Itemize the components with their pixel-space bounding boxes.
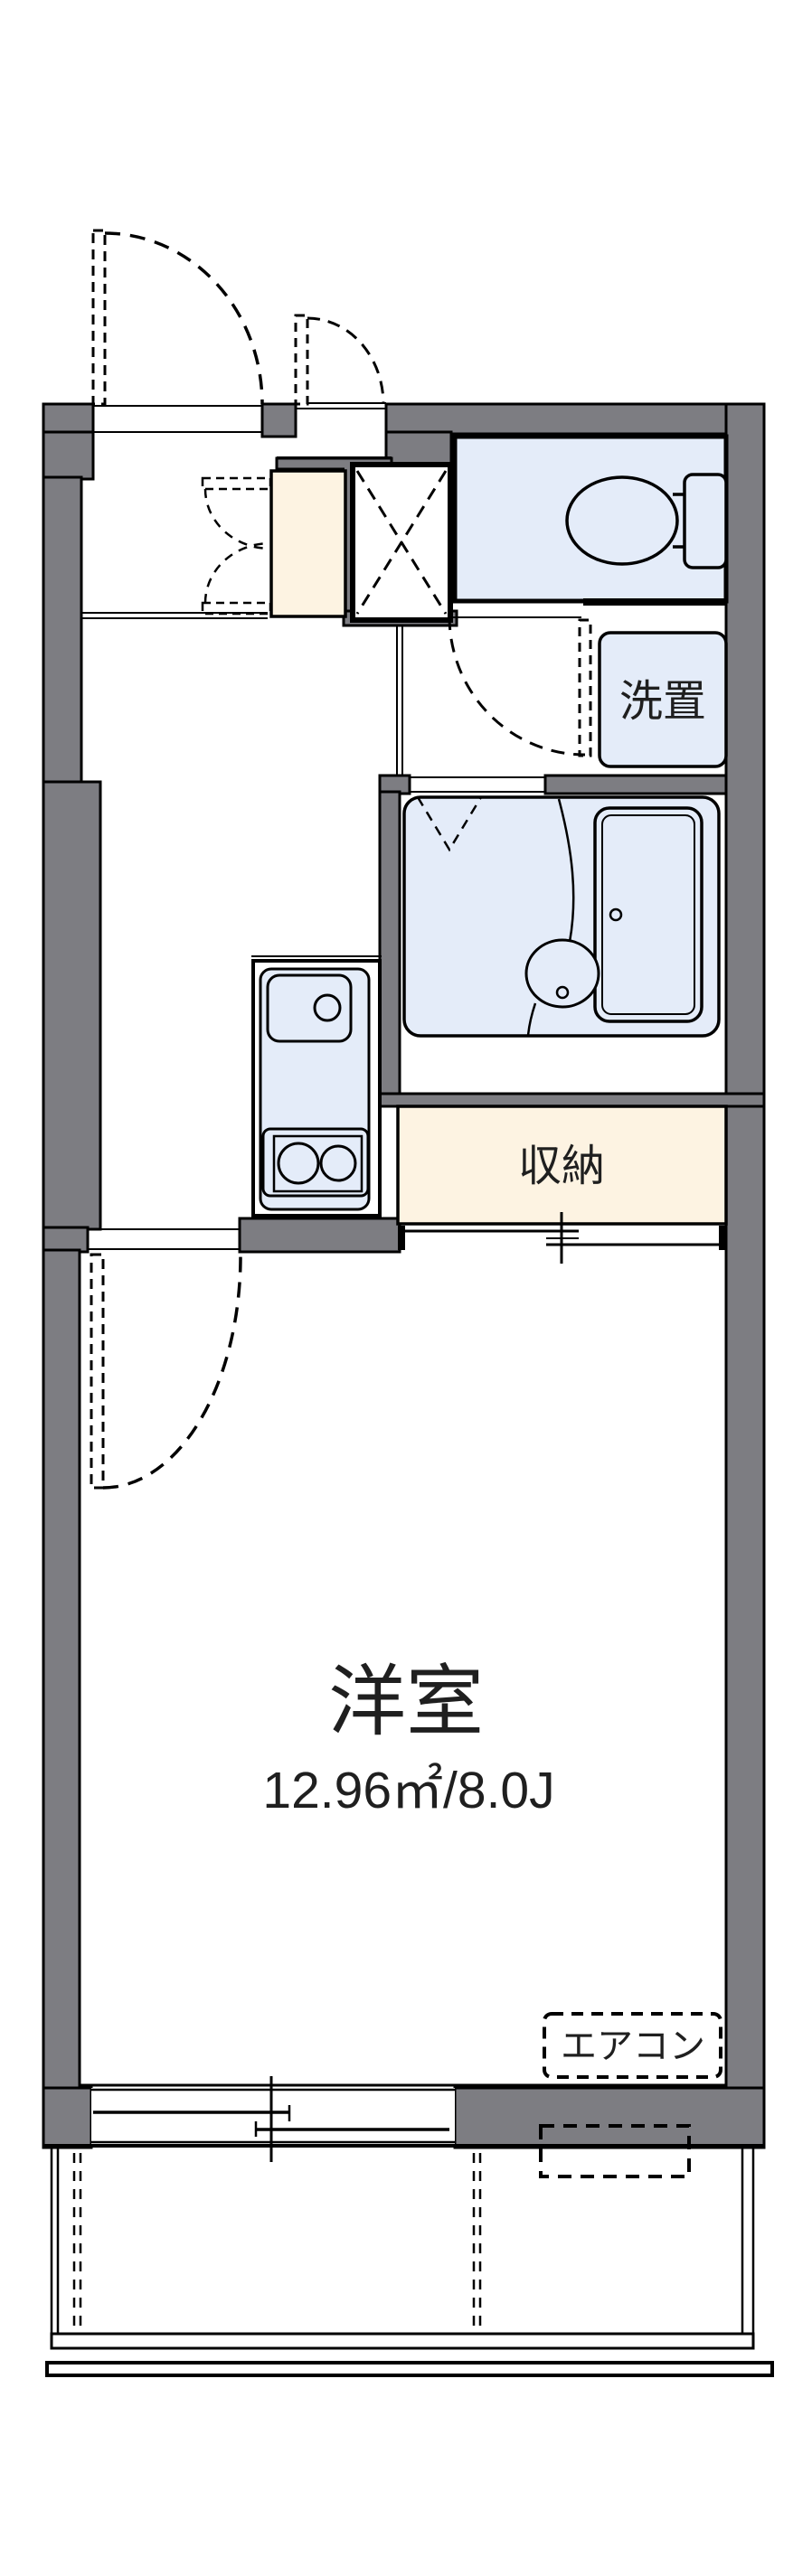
entrance-door-leaf: [93, 230, 105, 404]
entry-mat: [271, 471, 345, 616]
wall-bottom-right: [455, 2088, 764, 2148]
aircon-label: エアコン: [561, 2026, 705, 2066]
wall-left-mid: [43, 782, 100, 1229]
wall-washbath-right: [545, 776, 726, 794]
aircon-indoor-unit: エアコン: [544, 2014, 721, 2077]
room-door-swing: [91, 1255, 241, 1488]
wall-under-kitchen: [240, 1218, 400, 1252]
slide-post-left: [398, 1226, 405, 1250]
balcony-slab-inner: [52, 2334, 753, 2348]
closet-arc-top: [205, 489, 270, 549]
wall-top-right-seg: [386, 404, 764, 434]
wall-bottom-left: [43, 2088, 91, 2148]
wall-left-lower: [43, 1250, 80, 2148]
toilet-door-swing: [449, 616, 590, 756]
wall-left-corner-block: [43, 432, 93, 479]
closet-arc-bottom: [205, 543, 270, 603]
bathtub-icon: [595, 808, 702, 1021]
wall-bath-left: [380, 792, 400, 1106]
floorplan-page: 洗置 収納: [0, 0, 812, 2576]
wall-top-left-seg: [43, 404, 93, 434]
laundry-space: 洗置: [600, 633, 726, 766]
balcony: [47, 2126, 772, 2375]
wall-left-door-corner: [43, 1227, 88, 1252]
storage-label: 収納: [518, 1142, 605, 1190]
gas-stove-icon: [263, 1129, 368, 1196]
toilet-room: [455, 437, 726, 606]
balcony-partition-dashed: [74, 2153, 480, 2330]
kitchen: [253, 961, 380, 1216]
kitchen-faucet: [315, 995, 340, 1020]
room-door-arc: [103, 1256, 241, 1488]
wall-left-upper: [43, 477, 81, 785]
wall-bath-storage: [380, 1094, 764, 1106]
wall-under-toilet: [583, 598, 726, 606]
laundry-label: 洗置: [619, 678, 706, 726]
wall-right: [726, 404, 764, 2148]
toilet-bowl: [567, 477, 677, 564]
western-room: 洋室 12.96㎡/8.0J エアコン: [80, 1659, 726, 2085]
balcony-slab-outer: [47, 2363, 772, 2375]
storage: 収納: [398, 1106, 726, 1264]
window-opening: [91, 2088, 455, 2144]
floorplan-drawing: 洗置 収納: [0, 0, 812, 2576]
slide-post-right: [719, 1226, 726, 1250]
pipe-shaft-icon: [353, 465, 450, 620]
toilet-tank: [685, 475, 726, 568]
toilet-door-leaf: [580, 620, 590, 756]
closet-double-door-swing: [203, 478, 270, 614]
entrance-door-swing: [93, 230, 262, 404]
wall-top-right-subblock: [386, 432, 451, 466]
wall-top-mid-block: [262, 404, 296, 437]
service-door-leaf: [296, 315, 307, 404]
room-label: 洋室: [328, 1659, 484, 1745]
room-door-leaf: [91, 1255, 103, 1488]
toilet-door-arc: [449, 616, 585, 755]
toilet-icon: [567, 475, 726, 568]
service-door-arc: [307, 318, 383, 404]
room-area-label: 12.96㎡/8.0J: [262, 1762, 554, 1819]
closet-leaf-top: [203, 478, 270, 489]
kitchen-sink-icon: [268, 975, 351, 1041]
bathroom: [404, 797, 719, 1036]
service-door-swing: [296, 315, 383, 404]
entrance-door-arc: [105, 233, 262, 404]
